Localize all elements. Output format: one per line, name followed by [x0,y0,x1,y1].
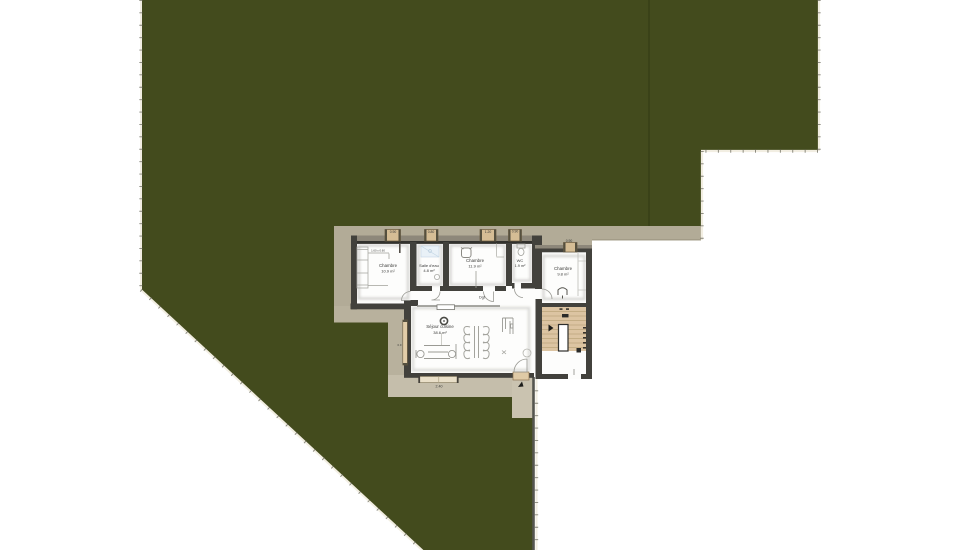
svg-text:WC: WC [517,258,524,263]
svg-text:9.8 m²: 9.8 m² [557,272,569,277]
svg-text:0.90: 0.90 [390,230,397,234]
svg-text:Séjour cuisine: Séjour cuisine [426,324,454,329]
svg-text:0.90: 0.90 [512,230,519,234]
svg-text:Chambre: Chambre [379,263,398,268]
svg-text:1.60 x 0.60: 1.60 x 0.60 [371,249,385,253]
svg-text:Dgt: Dgt [479,296,486,300]
svg-text:4.8 m²: 4.8 m² [423,268,435,273]
svg-text:Chambre: Chambre [466,258,485,263]
svg-text:0.80: 0.80 [428,230,435,234]
svg-text:10.9 m²: 10.9 m² [381,269,395,274]
svg-text:1.9 m²: 1.9 m² [515,264,526,268]
svg-text:11.9 m²: 11.9 m² [468,264,482,269]
svg-text:0.9: 0.9 [398,343,402,347]
svg-text:1.20: 1.20 [485,230,492,234]
svg-text:Chambre: Chambre [554,266,573,271]
svg-text:2.40: 2.40 [436,385,443,389]
svg-text:0.90: 0.90 [566,239,573,243]
svg-text:38.6 m²: 38.6 m² [433,330,447,335]
